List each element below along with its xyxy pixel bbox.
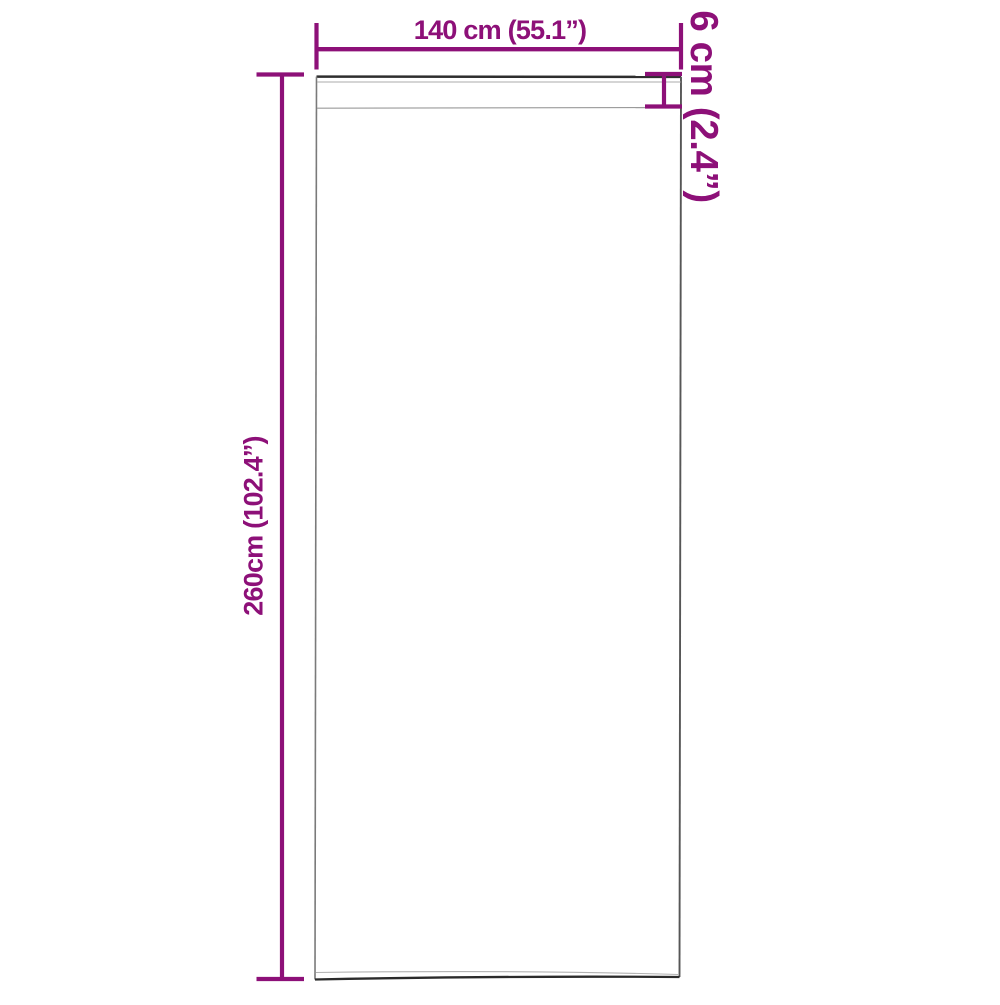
svg-text:260cm (102.4”): 260cm (102.4”): [239, 436, 269, 615]
svg-text:140 cm (55.1”): 140 cm (55.1”): [414, 14, 586, 45]
svg-text:6 cm (2.4”): 6 cm (2.4”): [682, 10, 725, 202]
